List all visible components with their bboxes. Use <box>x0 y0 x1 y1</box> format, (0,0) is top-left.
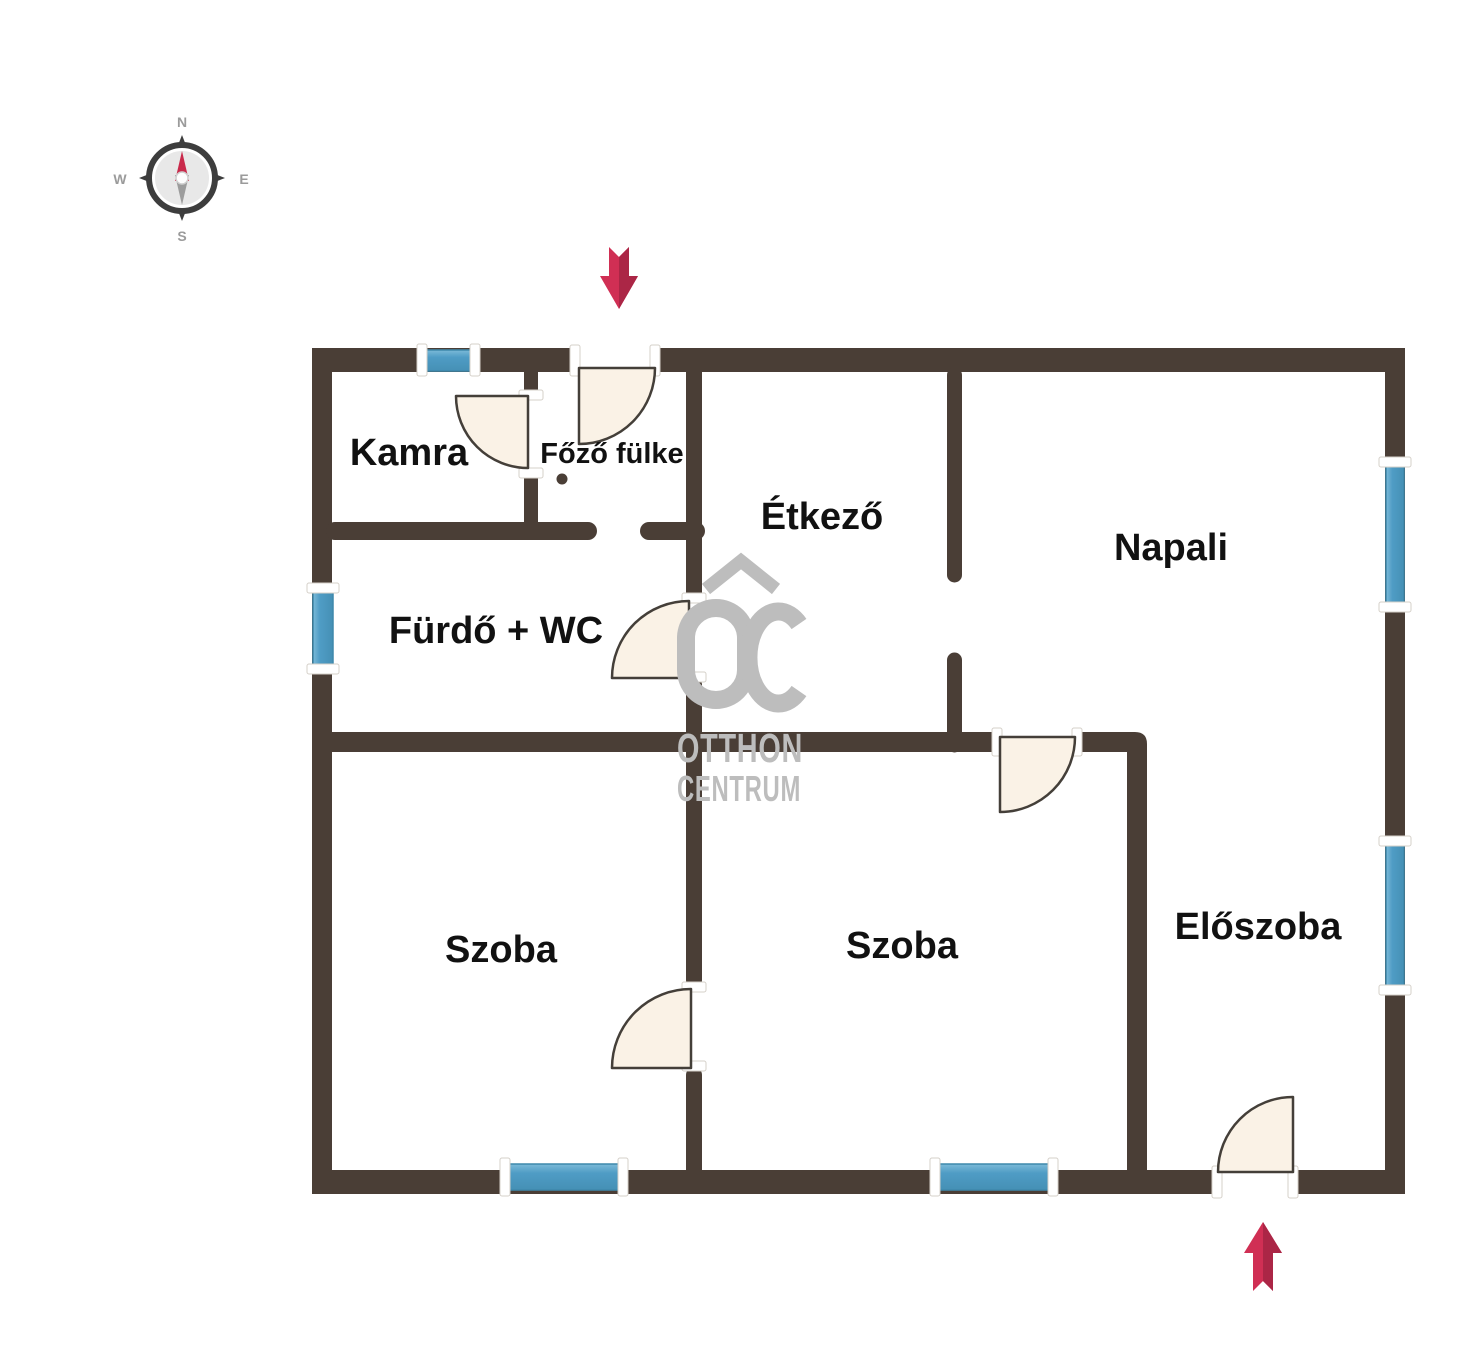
door-arc-fozo-entrance <box>579 368 655 444</box>
watermark-roof-icon <box>706 561 776 589</box>
wall-etkezo-west-upper <box>686 370 702 598</box>
window-cap <box>417 344 427 376</box>
window-cap <box>618 1158 628 1196</box>
frames <box>307 344 1411 1198</box>
door-arc-szoba-divider <box>612 989 691 1068</box>
watermark-letter-c <box>748 612 799 704</box>
entrance-arrow-top-shade <box>619 247 638 309</box>
floor-plan-canvas: N E S W OTTHON CENTRUM Kamra Főző fülke … <box>0 0 1480 1360</box>
windows <box>313 350 1404 1190</box>
room-label-kamra: Kamra <box>350 432 469 474</box>
room-label-furdo-wc: Fürdő + WC <box>389 610 603 652</box>
room-label-eloszoba: Előszoba <box>1175 906 1343 948</box>
floor-plan-page: N E S W OTTHON CENTRUM Kamra Főző fülke … <box>0 0 1480 1360</box>
window-eloszoba-right <box>1386 843 1404 990</box>
fixture-dot <box>557 474 568 485</box>
walls <box>312 348 1405 1194</box>
wall-eloszoba-west <box>1077 732 1147 1194</box>
compass-rose: N E S W <box>113 114 248 244</box>
window-furdo-left <box>313 592 333 665</box>
window-cap <box>500 1158 510 1196</box>
compass-label-w: W <box>113 171 127 187</box>
doors <box>456 368 1293 1172</box>
watermark-line2: CENTRUM <box>677 768 801 809</box>
room-label-fozo-fulke: Főző fülke <box>540 438 683 470</box>
compass-hub <box>176 172 188 184</box>
compass-label-e: E <box>239 171 248 187</box>
entrance-arrow-bottom-shade <box>1263 1222 1282 1291</box>
wall-outer-bottom-left <box>312 1170 1217 1194</box>
window-kamra-top <box>425 350 472 371</box>
door-arc-main-entrance <box>1218 1097 1293 1172</box>
window-napali-right <box>1386 465 1404 607</box>
watermark-line1: OTTHON <box>677 725 803 771</box>
room-label-szoba-left: Szoba <box>445 929 558 971</box>
compass-label-s: S <box>177 228 186 244</box>
room-label-szoba-middle: Szoba <box>846 925 959 967</box>
window-szoba-left-bottom <box>507 1164 623 1190</box>
room-labels: Kamra Főző fülke Étkező Napali Fürdő + W… <box>350 432 1342 971</box>
room-label-napali: Napali <box>1114 527 1228 569</box>
window-cap <box>1379 602 1411 612</box>
wall-outer-bottom-right <box>1293 1170 1405 1194</box>
compass-label-n: N <box>177 114 187 130</box>
window-szoba-middle-bottom <box>937 1164 1052 1190</box>
window-cap <box>1379 457 1411 467</box>
window-cap <box>1379 836 1411 846</box>
window-cap <box>930 1158 940 1196</box>
window-cap <box>307 664 339 674</box>
room-label-etkezo: Étkező <box>761 494 883 538</box>
window-cap <box>470 344 480 376</box>
window-cap <box>1048 1158 1058 1196</box>
window-cap <box>307 583 339 593</box>
window-cap <box>1379 985 1411 995</box>
door-arc-szoba-middle <box>1000 737 1075 812</box>
wall-outer-top-right <box>655 348 1405 372</box>
wall-mid-horizontal <box>312 732 997 752</box>
watermark-letter-o <box>686 608 746 700</box>
wall-outer-left <box>312 348 332 1194</box>
